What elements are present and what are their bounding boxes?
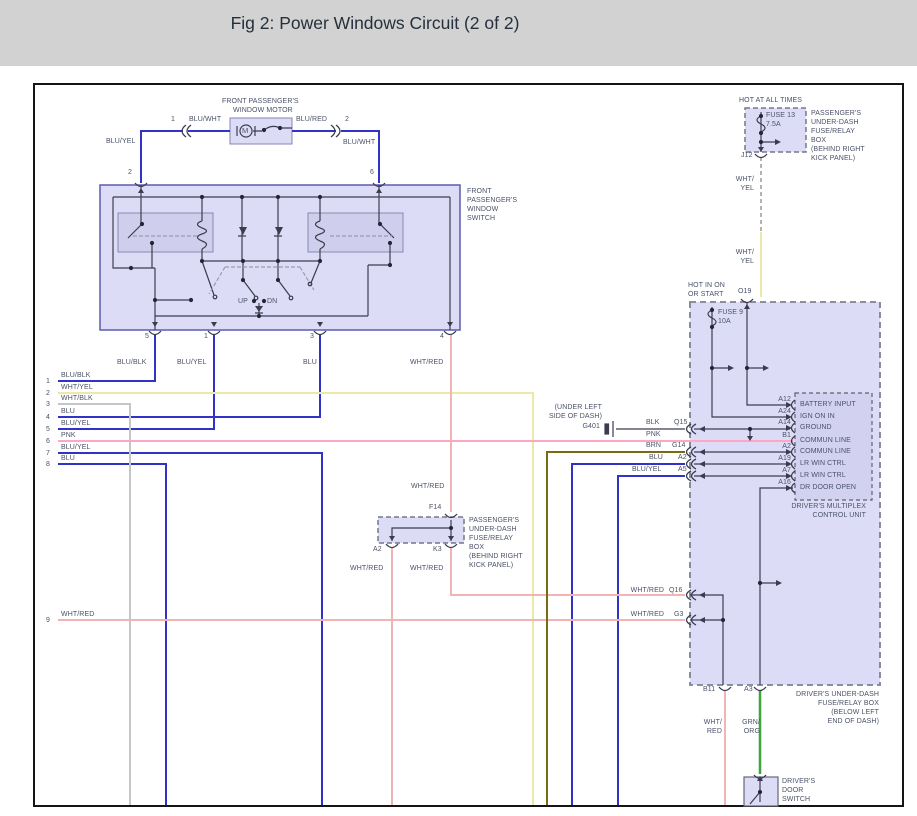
ground-location-2: SIDE OF DASH) xyxy=(520,413,602,421)
door-switch-label-1: DRIVER'S xyxy=(782,778,815,786)
switch-label-3: WINDOW xyxy=(467,206,498,214)
driver-fusebox-label-3: (BELOW LEFT xyxy=(789,709,879,717)
motor-name-line1: FRONT PASSENGER'S xyxy=(222,98,299,106)
wire-label-grn-org-a: GRN/ xyxy=(734,719,760,727)
wire-label-wht-red-b11b: RED xyxy=(696,728,722,736)
pass-fusebox-mid-label-4: BOX xyxy=(469,544,484,552)
mux-name-lr-win-ctrl-1: LR WIN CTRL xyxy=(800,460,846,468)
mux-pin-a16: A16 xyxy=(758,479,791,487)
mux-name-commun-line-2: COMMUN LINE xyxy=(800,448,851,456)
pass-fusebox-top-label-3: FUSE/RELAY xyxy=(811,128,855,136)
fuse9-amps: 10A xyxy=(718,318,731,326)
switch-up-label: UP xyxy=(238,298,248,306)
mux-pin-a7: A7 xyxy=(758,467,791,475)
mux-name-lr-win-ctrl-2: LR WIN CTRL xyxy=(800,472,846,480)
connector-k3: K3 xyxy=(433,546,442,554)
wire-label-wht-yel-2a: WHT/ xyxy=(726,249,754,257)
row-num-1: 1 xyxy=(42,378,50,386)
switch-pin-5: 5 xyxy=(145,333,149,341)
pass-fusebox-top-label-6: KICK PANEL) xyxy=(811,155,855,163)
wire-label-blu-yel-pin1: BLU/YEL xyxy=(177,359,207,367)
ground-location-1: (UNDER LEFT xyxy=(520,404,602,412)
driver-fusebox-label-2: FUSE/RELAY BOX xyxy=(789,700,879,708)
row-num-8: 8 xyxy=(42,461,50,469)
wire-label-blu-blk: BLU/BLK xyxy=(117,359,147,367)
wire-label-grn-org-b: ORG xyxy=(734,728,760,736)
connector-a5: A5 xyxy=(678,466,687,474)
wire-label-wht-red-g3: WHT/RED xyxy=(620,611,664,619)
row-num-3: 3 xyxy=(42,401,50,409)
switch-pin-2: 2 xyxy=(128,169,132,177)
motor-name-line2: WINDOW MOTOR xyxy=(233,107,293,115)
fuse13-amps: 7.5A xyxy=(766,121,781,129)
row-label-5: BLU/YEL xyxy=(61,420,91,428)
connector-f14: F14 xyxy=(429,504,441,512)
relay-left-box xyxy=(118,213,213,252)
connector-g14: G14 xyxy=(672,442,686,450)
mux-pin-a14: A14 xyxy=(758,419,791,427)
motor-pin-1: 1 xyxy=(171,116,175,124)
wire-label-wht-red-a2: WHT/RED xyxy=(350,565,383,573)
row-num-5: 5 xyxy=(42,426,50,434)
row-num-9: 9 xyxy=(42,617,50,625)
pass-fusebox-mid-label-5: (BEHIND RIGHT xyxy=(469,553,523,561)
switch-label-1: FRONT xyxy=(467,188,492,196)
wire-label-blu-red: BLU/RED xyxy=(296,116,327,124)
mux-label-2: CONTROL UNIT xyxy=(776,512,866,520)
row-label-3: WHT/BLK xyxy=(61,395,93,403)
wire-label-wht-yel-1b: YEL xyxy=(726,185,754,193)
connector-q16: Q16 xyxy=(669,587,683,595)
motor-m-symbol: M xyxy=(242,127,248,135)
mux-name-ign-on-in: IGN ON IN xyxy=(800,413,835,421)
fuse13-name: FUSE 13 xyxy=(766,112,795,120)
pass-fusebox-mid-label-6: KICK PANEL) xyxy=(469,562,513,570)
row-num-4: 4 xyxy=(42,414,50,422)
wire-label-blu-wht-right: BLU/WHT xyxy=(343,139,375,147)
pass-fusebox-top-label-5: (BEHIND RIGHT xyxy=(811,146,865,154)
door-switch-label-3: SWITCH xyxy=(782,796,810,804)
wire-label-wht-red-b11a: WHT/ xyxy=(696,719,722,727)
wire-label-blu-yel-left: BLU/YEL xyxy=(106,138,136,146)
row-label-8: BLU xyxy=(61,455,75,463)
wire-label-blu-wht-top: BLU/WHT xyxy=(189,116,221,124)
mux-label-1: DRIVER'S MULTIPLEX xyxy=(776,503,866,511)
fuse9-name: FUSE 9 xyxy=(718,309,743,317)
row-num-2: 2 xyxy=(42,390,50,398)
pass-fusebox-mid-label-2: UNDER-DASH xyxy=(469,526,517,534)
row-label-7: BLU/YEL xyxy=(61,444,91,452)
switch-pin-1: 1 xyxy=(204,333,208,341)
motor-pin-2: 2 xyxy=(345,116,349,124)
driver-fusebox-label-1: DRIVER'S UNDER-DASH xyxy=(789,691,879,699)
ground-name: G401 xyxy=(544,423,600,431)
row-label-2: WHT/YEL xyxy=(61,384,93,392)
hot-in-on-1: HOT IN ON xyxy=(688,282,725,290)
switch-label-4: SWITCH xyxy=(467,215,495,223)
connector-b11: B11 xyxy=(703,686,715,694)
mux-pin-a19: A19 xyxy=(758,455,791,463)
hot-at-all-times: HOT AT ALL TIMES xyxy=(739,97,802,105)
pass-fusebox-top-label-2: UNDER-DASH xyxy=(811,119,859,127)
switch-pin-4: 4 xyxy=(440,333,444,341)
door-switch-label-2: DOOR xyxy=(782,787,803,795)
mux-name-battery-input: BATTERY INPUT xyxy=(800,401,856,409)
wire-label-wht-yel-1a: WHT/ xyxy=(726,176,754,184)
switch-dn-label: DN xyxy=(267,298,277,306)
mux-name-ground: GROUND xyxy=(800,424,832,432)
row-label-4: BLU xyxy=(61,408,75,416)
connector-a2-mid: A2 xyxy=(373,546,382,554)
row-label-1: BLU/BLK xyxy=(61,372,91,380)
switch-pin-6: 6 xyxy=(370,169,374,177)
wire-label-pnk: PNK xyxy=(646,431,661,439)
connector-o19: O19 xyxy=(738,288,752,296)
wire-label-wht-yel-2b: YEL xyxy=(726,258,754,266)
connector-g3: G3 xyxy=(674,611,684,619)
switch-pin-3: 3 xyxy=(310,333,314,341)
wire-label-wht-red-k3: WHT/RED xyxy=(410,565,443,573)
row-label-6: PNK xyxy=(61,432,76,440)
pass-fusebox-top-label-1: PASSENGER'S xyxy=(811,110,861,118)
connector-q15: Q15 xyxy=(674,419,688,427)
mux-pin-b1: B1 xyxy=(758,432,791,440)
driver-fusebox-label-4: END OF DASH) xyxy=(789,718,879,726)
wire-label-blk: BLK xyxy=(646,419,660,427)
switch-label-2: PASSENGER'S xyxy=(467,197,517,205)
ground-symbol-block xyxy=(605,424,609,434)
wire-label-blu-mid: BLU xyxy=(649,454,663,462)
wiring-diagram-page: Fig 2: Power Windows Circuit (2 of 2) xyxy=(0,0,917,816)
wire-label-wht-red-f14: WHT/RED xyxy=(411,483,444,491)
hot-in-on-2: OR START xyxy=(688,291,724,299)
row-num-7: 7 xyxy=(42,450,50,458)
mux-name-dr-door-open: DR DOOR OPEN xyxy=(800,484,856,492)
pass-fusebox-top-label-4: BOX xyxy=(811,137,826,145)
mux-pin-a12: A12 xyxy=(758,396,791,404)
connector-a2: A2 xyxy=(678,454,687,462)
mux-pin-a24: A24 xyxy=(758,408,791,416)
row-num-6: 6 xyxy=(42,438,50,446)
wire-label-brn: BRN xyxy=(646,442,661,450)
connector-a3: A3 xyxy=(744,686,753,694)
window-switch-box xyxy=(100,185,460,330)
pass-fusebox-mid-label-3: FUSE/RELAY xyxy=(469,535,513,543)
wire-label-wht-red-pin4: WHT/RED xyxy=(410,359,443,367)
wire-label-wht-red-q16: WHT/RED xyxy=(620,587,664,595)
mux-pin-a2: A2 xyxy=(758,443,791,451)
mux-name-commun-line-1: COMMUN LINE xyxy=(800,437,851,445)
row-label-9: WHT/RED xyxy=(61,611,94,619)
wire-label-blu-pin3: BLU xyxy=(303,359,317,367)
wire-label-blu-yel-mid: BLU/YEL xyxy=(632,466,662,474)
pass-fusebox-mid-label-1: PASSENGER'S xyxy=(469,517,519,525)
connector-j12: J12 xyxy=(741,152,753,160)
